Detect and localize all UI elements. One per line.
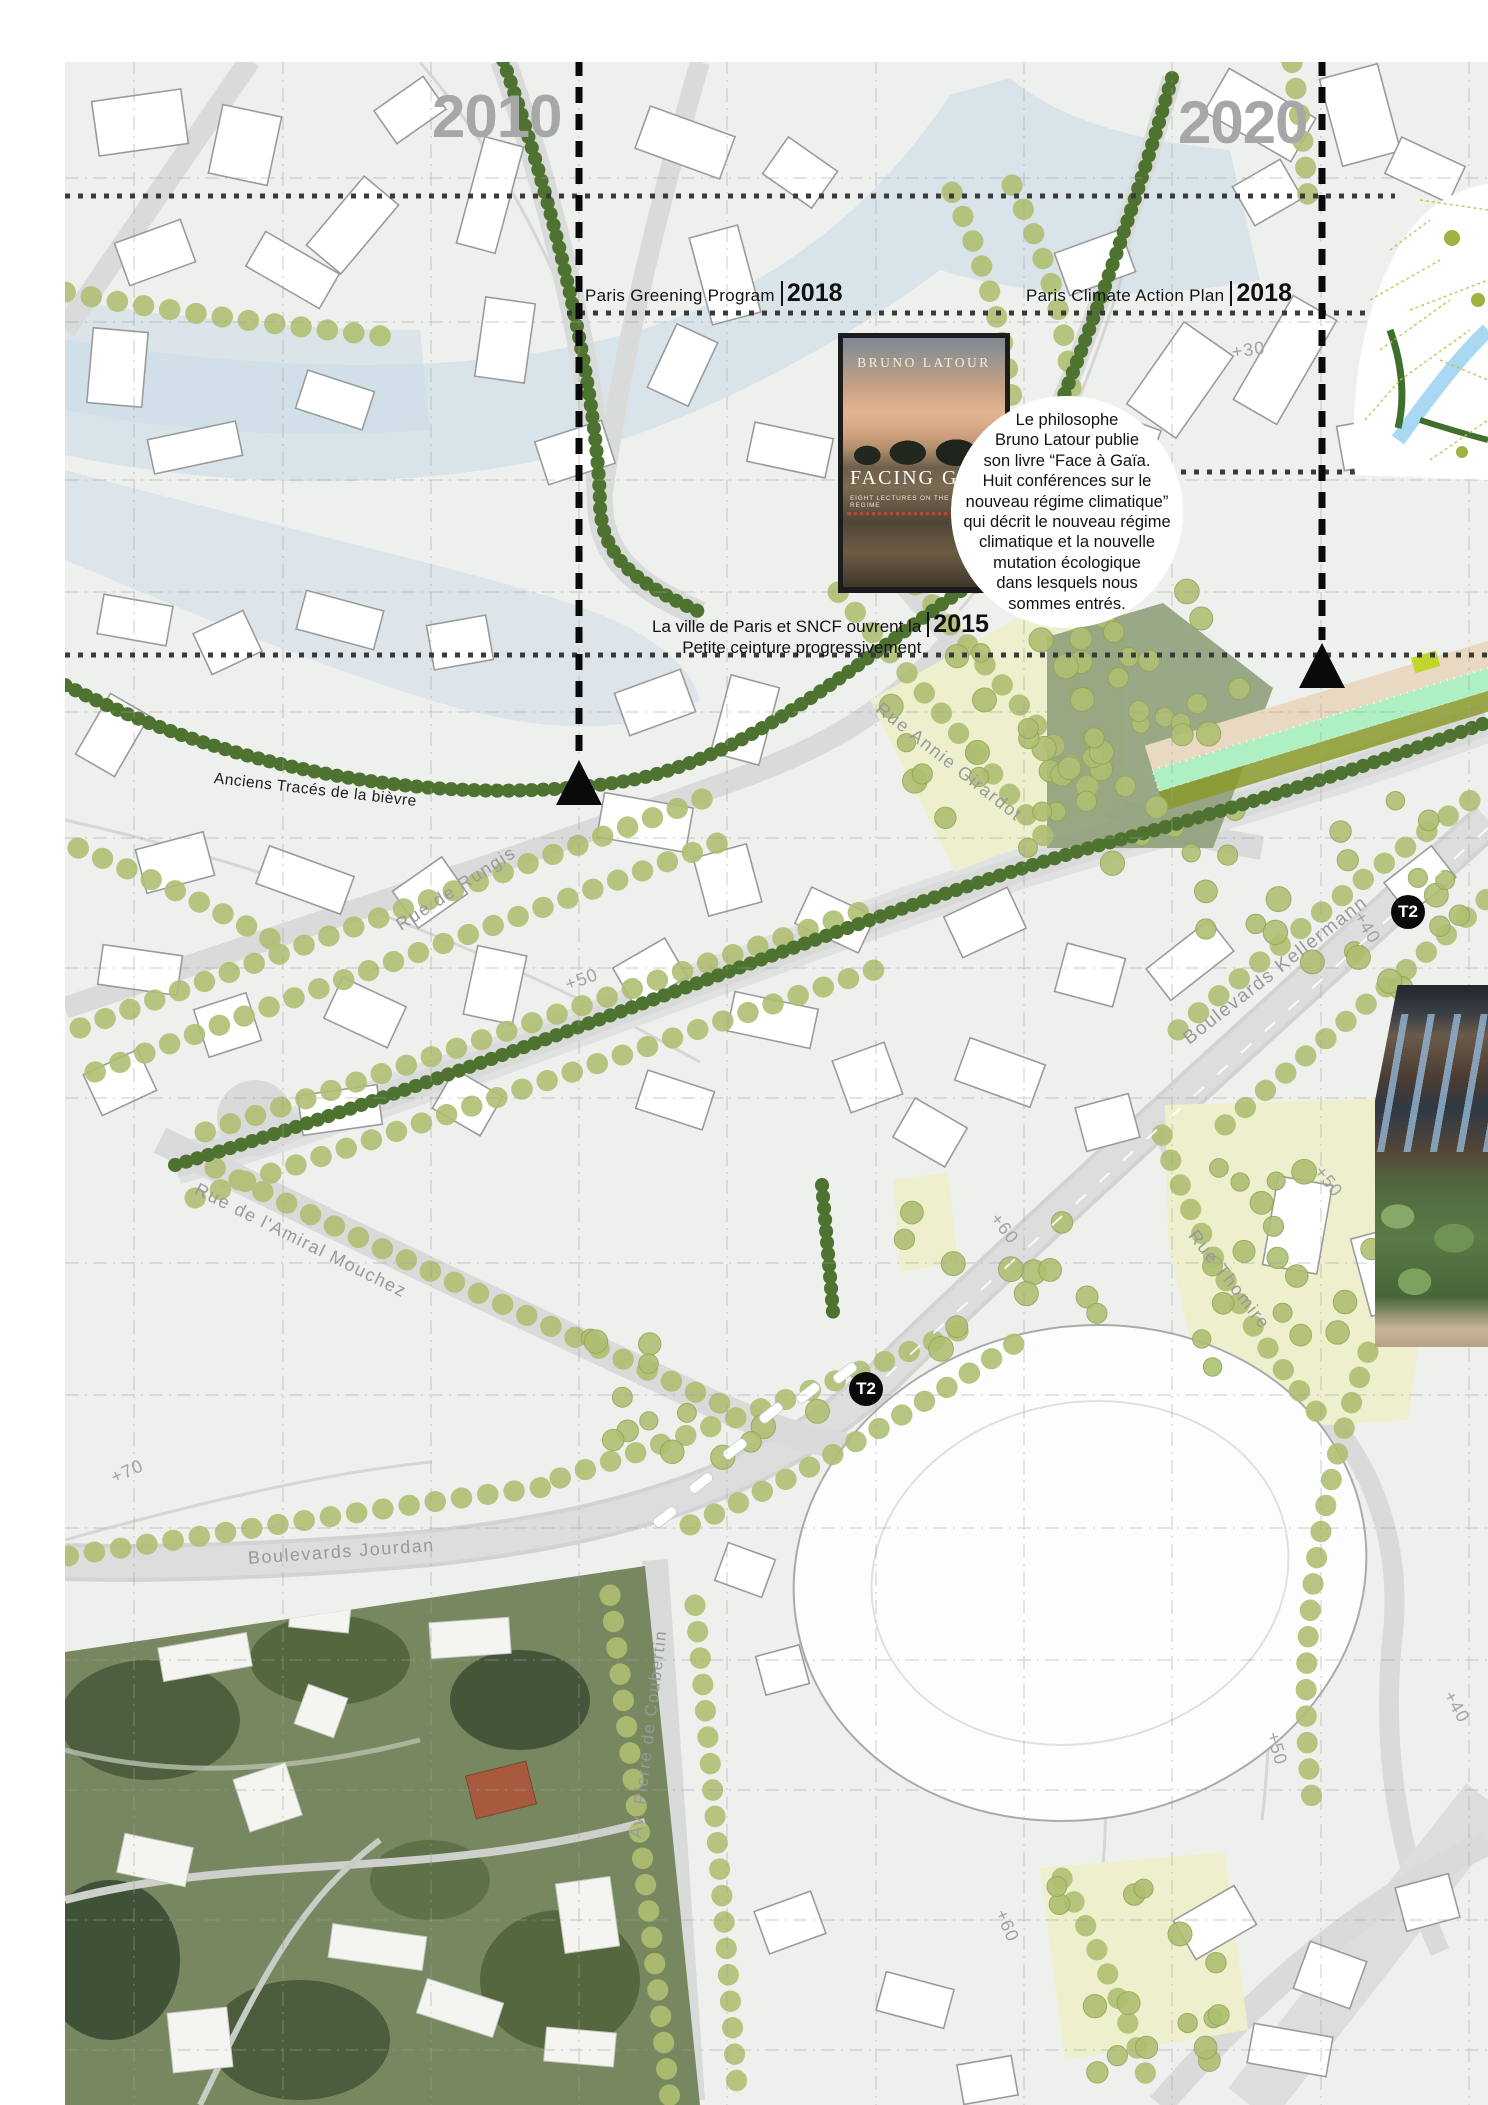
bubble-line: Le philosophe (1016, 411, 1119, 429)
bubble-line: sommes entrés. (1008, 595, 1125, 613)
event-climate-plan: Paris Climate Action Plan 2018 (1026, 281, 1292, 306)
event-label-line1: La ville de Paris et SNCF ouvrent la (652, 617, 921, 636)
bubble-line: Huit conférences sur le (983, 472, 1152, 490)
book-author: BRUNO LATOUR (843, 355, 1005, 371)
event-year: 2015 (927, 612, 989, 637)
bubble-line: dans lesquels nous (996, 574, 1137, 592)
photo-building-glass (1375, 1014, 1488, 1152)
bubble-line: son livre “Face à Gaïa. (984, 452, 1151, 470)
event-label: La ville de Paris et SNCF ouvrent la Pet… (652, 616, 921, 659)
bubble-line: qui décrit le nouveau régime (963, 513, 1170, 531)
bubble-text: Le philosophe Bruno Latour publie son li… (963, 410, 1170, 615)
base-map (0, 0, 1488, 2105)
event-greening-program: Paris Greening Program 2018 (585, 281, 843, 306)
latour-speech-bubble: Le philosophe Bruno Latour publie son li… (951, 396, 1183, 628)
page-margin-top (0, 0, 1488, 62)
tram-t2-badge-jourdan: T2 (849, 1372, 883, 1406)
event-label-line2: Petite ceinture progressivement (682, 638, 921, 657)
bubble-line: Bruno Latour publie (995, 431, 1139, 449)
timeline-year-2020: 2020 (1178, 88, 1307, 157)
bubble-line: nouveau régime climatique” (966, 493, 1169, 511)
bubble-line: mutation écologique (993, 554, 1141, 572)
photo-greenery (1375, 1173, 1488, 1318)
event-year: 2018 (781, 281, 843, 306)
site-photo-inset (1375, 985, 1488, 1347)
event-petite-ceinture: La ville de Paris et SNCF ouvrent la Pet… (652, 612, 989, 659)
tram-t2-badge-kellermann: T2 (1391, 895, 1425, 929)
event-label: Paris Climate Action Plan (1026, 286, 1224, 306)
page-margin-left (0, 0, 65, 2105)
timeline-year-2010: 2010 (432, 82, 561, 151)
bubble-line: climatique et la nouvelle (979, 533, 1155, 551)
event-year: 2018 (1230, 281, 1292, 306)
map-poster: 2010 2020 Paris Greening Program 2018 Pa… (0, 0, 1488, 2105)
event-label: Paris Greening Program (585, 286, 775, 306)
